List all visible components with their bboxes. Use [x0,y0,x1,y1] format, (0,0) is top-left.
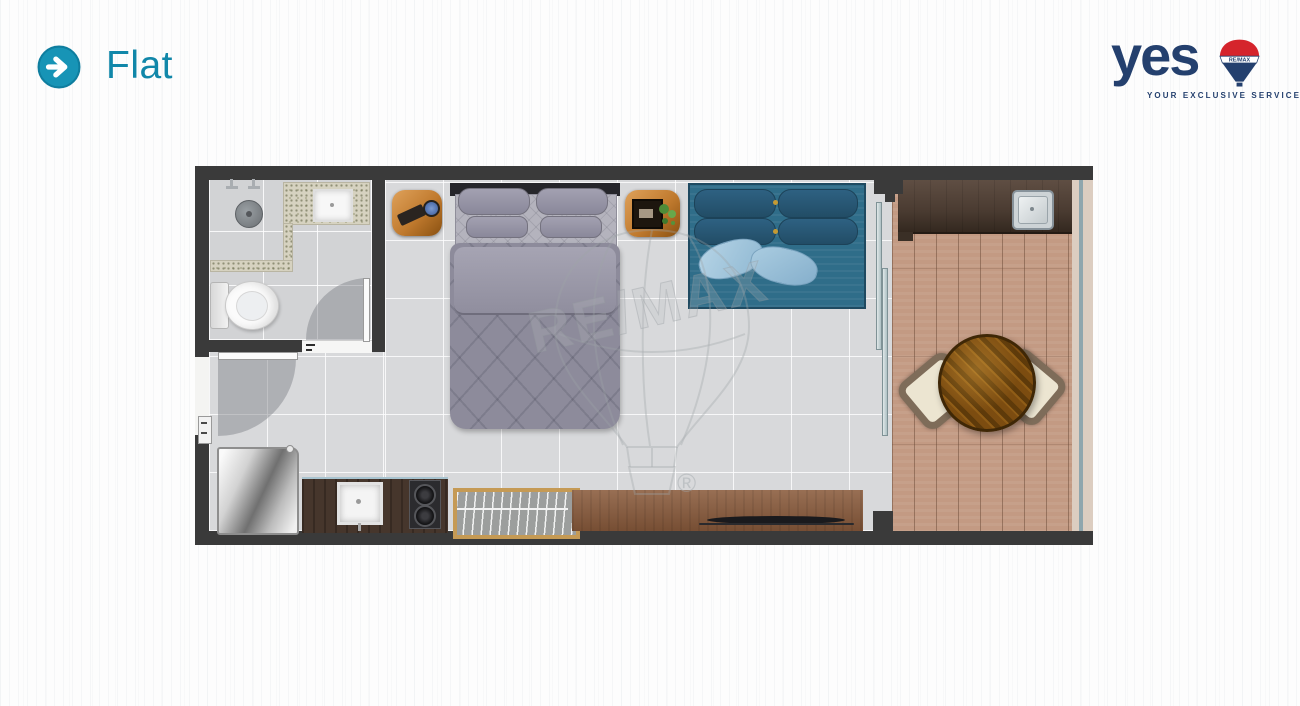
brand-wordmark: yes [1111,26,1198,86]
arrow-circle-icon [37,45,81,89]
double-bed [450,183,620,429]
toilet-icon [225,281,279,330]
balcony-sink-icon [1012,190,1054,230]
shower-partition [210,260,293,272]
pillow [536,188,608,215]
kitchen-sink-icon [337,482,383,525]
clock-icon [423,200,440,217]
shelf-inset [632,199,663,229]
pillow [458,188,530,215]
pillow [540,216,602,238]
sofa-cushion [694,189,776,218]
page-title: Flat [106,44,173,88]
page: { "header": { "title": "Flat" }, "brand"… [0,0,1300,706]
entry-door-leaf [218,352,298,360]
sliding-glass-door [882,268,888,436]
throw-pillow [747,241,821,291]
sofa [688,183,866,309]
round-table [938,334,1036,432]
floor-plan: RE/MAX ® [195,166,1093,545]
cushion-button [773,200,778,205]
wall-stub [874,180,903,194]
duvet-fold [454,247,616,315]
pillow [466,216,528,238]
tray-icon [397,204,427,226]
bathroom-threshold [302,340,372,353]
bathroom-door-leaf [363,278,370,342]
burner-icon [414,484,436,506]
sofa-cushion [778,218,858,245]
duvet [450,243,620,429]
tv-icon [707,516,845,524]
fridge-icon [217,447,299,535]
burner-icon [414,505,436,527]
bathroom-sink-icon [313,189,353,222]
sofa-cushion [778,189,858,218]
cooktop-icon [409,480,441,529]
nightstand-left [392,190,442,236]
shower-head-icon [235,200,263,228]
dish-rack [453,488,580,539]
railing-glass-line [1079,180,1083,531]
nightstand-right [625,190,680,237]
cushion-button [773,229,778,234]
remax-balloon-icon: RE/MAX [1217,37,1262,93]
plant-icon [659,204,669,214]
shower-control-icon [226,186,238,189]
balloon-label: RE/MAX [1229,57,1251,63]
wall-stub [873,511,893,531]
wall-stub [885,194,895,202]
shower-control-icon [248,186,260,189]
glass-railing [1072,180,1093,531]
entry-cabinet [198,416,212,444]
brand-tagline: YOUR EXCLUSIVE SERVICES [1147,91,1300,100]
